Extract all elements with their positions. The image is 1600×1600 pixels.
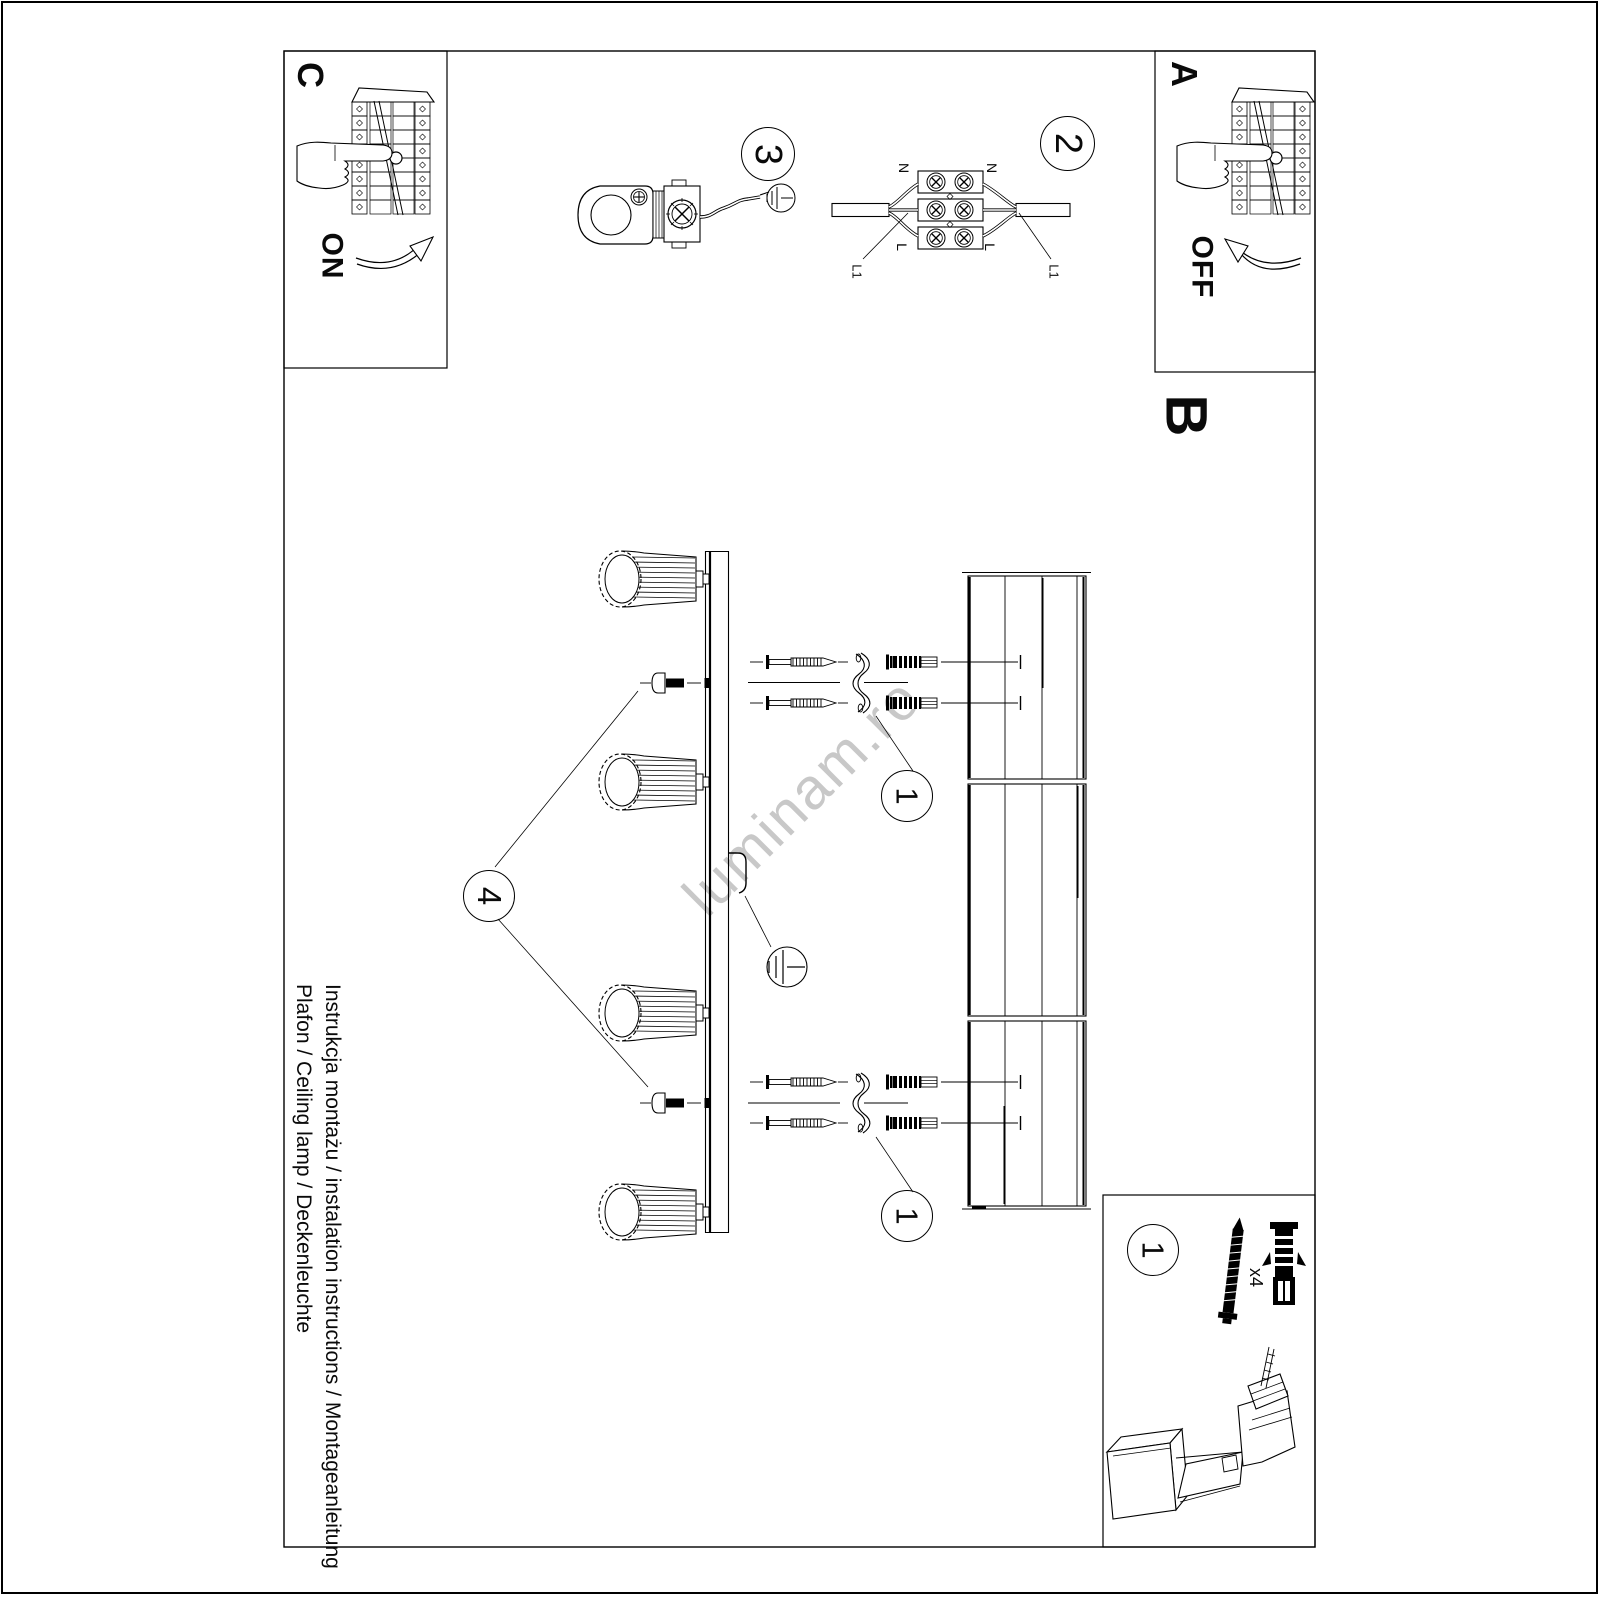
mounting-hardware-upper: [748, 653, 1021, 771]
instruction-leaflet-page: luminam.ro: [0, 0, 1600, 1600]
wall-plug-row-3: [886, 1075, 1021, 1090]
knob-screw-2: [640, 1093, 701, 1113]
screw-row-3: [750, 1075, 848, 1089]
pointing-hand-off-icon: [1177, 142, 1272, 188]
wiring-n-left-label: N: [894, 158, 914, 178]
line-art-layer: [0, 0, 1600, 1600]
screw-row-1: [750, 655, 848, 669]
screw-row-4: [750, 1116, 848, 1130]
drill-icon: [1107, 1347, 1295, 1519]
footer-line-1: Instrukcja montażu / instalation instruc…: [318, 984, 347, 1546]
terminal-block-drawing: [832, 171, 1070, 259]
wiring-n-right-label: N: [982, 158, 1002, 178]
footer-line-2: Plafon / Ceiling lamp / Deckenleuchte: [289, 984, 318, 1546]
step1-lower-leader: [876, 1137, 913, 1192]
wall-plug-row-4: [886, 1116, 1021, 1131]
mounting-rail-drawing: [705, 551, 730, 1233]
spotlight-shade-3: [599, 985, 709, 1041]
step4-badge: 4: [463, 870, 515, 922]
section-c-label: C: [290, 55, 330, 95]
section-b-label: B: [1156, 385, 1216, 445]
wiring-l-left-label: L: [892, 237, 912, 257]
off-label: OFF: [1161, 227, 1241, 307]
on-label: ON: [301, 226, 361, 286]
mounting-hardware-lower: [748, 1073, 1021, 1192]
rotate-on-arrow-icon: [356, 237, 433, 268]
ground-symbol-main-icon: [767, 947, 807, 987]
kit-step-badge: 1: [1127, 1224, 1179, 1276]
wiring-l1-left-label: L1: [845, 259, 869, 283]
step3-badge: 3: [741, 127, 795, 181]
spotlight-shade-1: [599, 551, 709, 607]
screw-plug-quantity-label: x4: [1241, 1262, 1271, 1292]
section-a-label: A: [1164, 54, 1204, 94]
spotlight-shade-4: [599, 1184, 709, 1240]
wiring-l1-right-label: L1: [1042, 259, 1066, 283]
step1-upper-leader: [876, 716, 913, 771]
knob-screw-1: [640, 673, 701, 693]
wall-plug-row-1: [886, 655, 1021, 670]
cable-hook-drawing: [729, 853, 771, 947]
ceiling-section-drawing: [962, 573, 1091, 1210]
footer-title-block: Instrukcja montażu / instalation instruc…: [289, 984, 347, 1546]
step2-badge: 2: [1040, 116, 1095, 171]
screw-row-2: [750, 696, 848, 710]
wiring-l-right-label: L: [980, 237, 1000, 257]
step1-lower-badge: 1: [881, 1190, 933, 1242]
mounting-bracket-upper: [853, 653, 870, 713]
wall-plug-row-2: [886, 696, 1021, 711]
spotlight-shade-2: [599, 754, 709, 810]
cable-clamp-drawing: [578, 180, 769, 248]
ground-symbol-step3-icon: [767, 184, 795, 212]
step1-upper-badge: 1: [881, 770, 933, 822]
pointing-hand-on-icon: [297, 142, 392, 188]
